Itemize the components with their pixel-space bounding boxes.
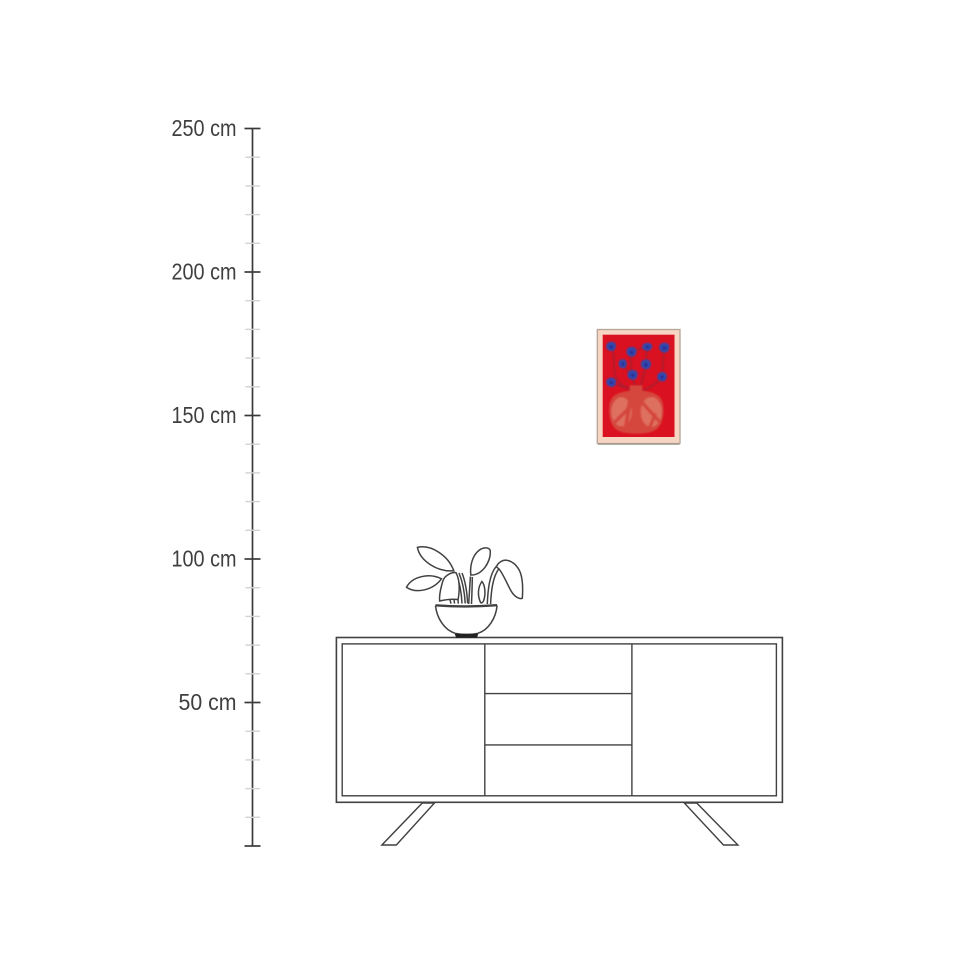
svg-text:250 cm: 250 cm <box>172 115 237 141</box>
svg-text:150 cm: 150 cm <box>172 402 237 428</box>
svg-text:50 cm: 50 cm <box>179 689 237 715</box>
svg-text:100 cm: 100 cm <box>172 545 237 571</box>
svg-text:200 cm: 200 cm <box>172 258 237 284</box>
